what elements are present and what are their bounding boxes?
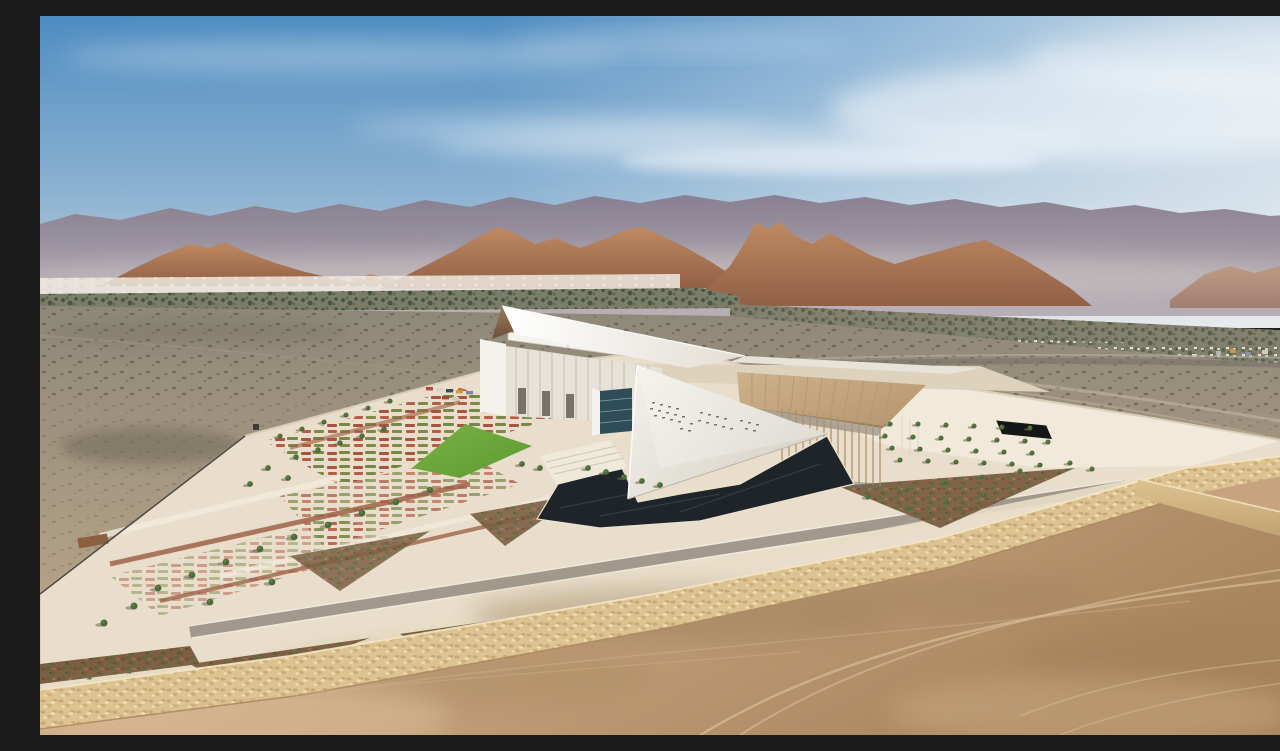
- dark-band: [50, 319, 350, 345]
- aerial-photograph: Aerial photograph of an angular white mu…: [40, 16, 1280, 735]
- glass-atrium: [600, 388, 632, 434]
- atrium-fin: [592, 388, 600, 436]
- gate-hut: [253, 424, 259, 430]
- photo-canvas: Aerial photograph of an angular white mu…: [40, 16, 1280, 735]
- rear-block-end: [480, 339, 506, 416]
- dark-gravel-patch: [60, 428, 240, 464]
- cloud: [510, 34, 850, 54]
